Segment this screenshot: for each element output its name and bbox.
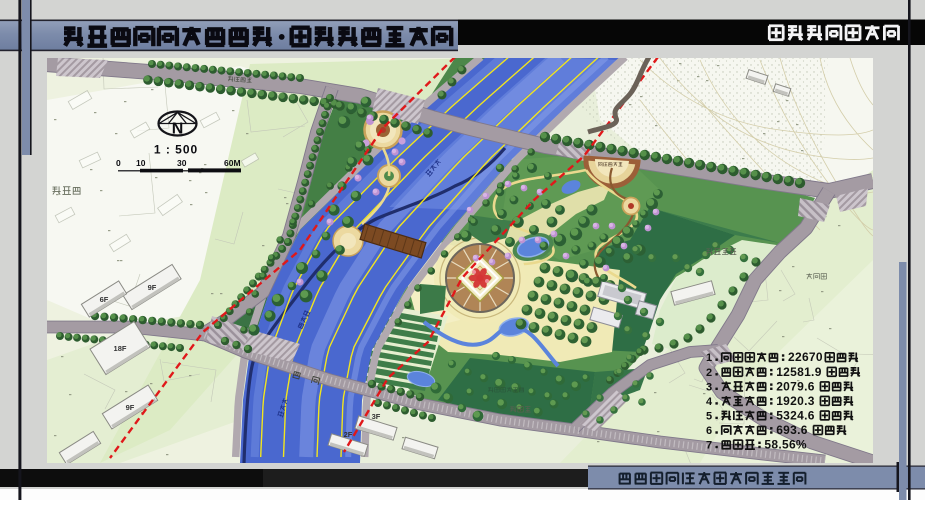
svg-text:6: 6 xyxy=(706,425,712,437)
svg-text:4: 4 xyxy=(706,396,713,408)
svg-text:6F: 6F xyxy=(100,295,109,304)
svg-text:5: 5 xyxy=(706,410,712,422)
svg-text:18F: 18F xyxy=(114,344,127,353)
svg-text:2: 2 xyxy=(706,367,712,379)
svg-text:22670: 22670 xyxy=(788,350,823,364)
svg-text:60M: 60M xyxy=(224,158,241,168)
svg-text:58.56%: 58.56% xyxy=(764,438,807,452)
svg-text:10: 10 xyxy=(136,158,146,168)
svg-text:30: 30 xyxy=(177,158,187,168)
svg-text:2F: 2F xyxy=(344,430,353,439)
svg-text:3F: 3F xyxy=(372,412,381,421)
svg-text:1 : 500: 1 : 500 xyxy=(154,143,198,157)
svg-text:1920.3: 1920.3 xyxy=(776,394,815,408)
svg-text:N: N xyxy=(172,121,184,138)
svg-text:12581.9: 12581.9 xyxy=(776,365,822,379)
svg-text:1: 1 xyxy=(706,352,712,364)
svg-text:9F: 9F xyxy=(148,283,157,292)
svg-text:2079.6: 2079.6 xyxy=(776,379,815,393)
svg-text:5324.6: 5324.6 xyxy=(776,408,815,422)
svg-text:3: 3 xyxy=(706,381,712,393)
svg-text:0: 0 xyxy=(116,158,121,168)
svg-text:9F: 9F xyxy=(126,403,135,412)
svg-text:7: 7 xyxy=(706,440,712,452)
svg-text:693.6: 693.6 xyxy=(776,423,808,437)
